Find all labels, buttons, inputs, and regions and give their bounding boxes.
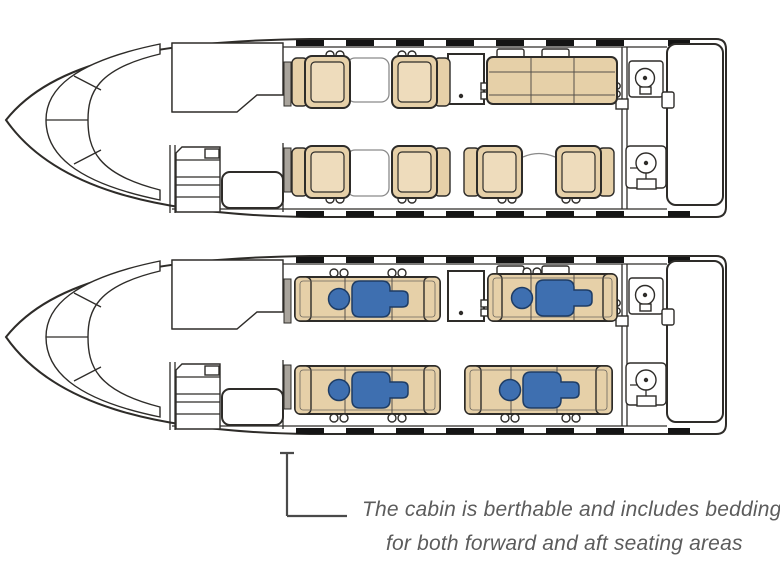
forward-table-lower — [347, 150, 389, 196]
berth-bed — [295, 366, 440, 422]
aircraft-day-configuration — [6, 39, 726, 217]
berth-bed — [465, 366, 612, 422]
berth-bed — [295, 269, 440, 321]
single-seat — [556, 146, 614, 203]
single-seat — [392, 51, 450, 108]
aircraft-berthed-configuration — [6, 256, 726, 434]
single-seat — [292, 51, 350, 108]
floorplan-graphic — [0, 0, 780, 574]
single-seat — [464, 146, 522, 203]
berth-bed — [488, 266, 617, 321]
single-seat — [292, 146, 350, 203]
leader-line — [280, 453, 347, 516]
forward-table-upper — [347, 58, 389, 102]
divan — [487, 49, 617, 104]
single-seat — [392, 146, 450, 203]
caption-line1: The cabin is berthable and includes bedd… — [362, 496, 780, 523]
caption-line2: for both forward and aft seating areas — [386, 530, 743, 557]
cabin-floorplan-figure: The cabin is berthable and includes bedd… — [0, 0, 780, 574]
